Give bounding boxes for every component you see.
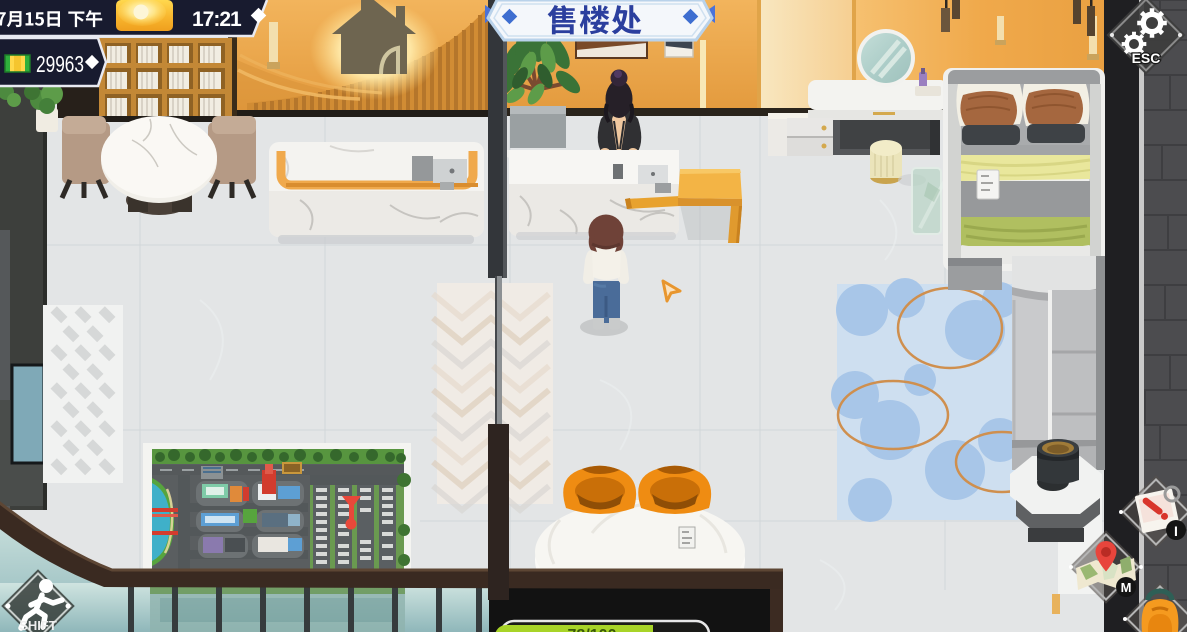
svg-text:17:21: 17:21	[192, 8, 242, 31]
svg-text:29963: 29963	[36, 51, 84, 77]
svg-text:M: M	[1121, 580, 1132, 595]
svg-text:ESC: ESC	[1132, 50, 1161, 66]
svg-text:I: I	[1174, 523, 1178, 539]
svg-text:SHIFT: SHIFT	[19, 618, 57, 632]
svg-text:78/100: 78/100	[568, 627, 617, 632]
